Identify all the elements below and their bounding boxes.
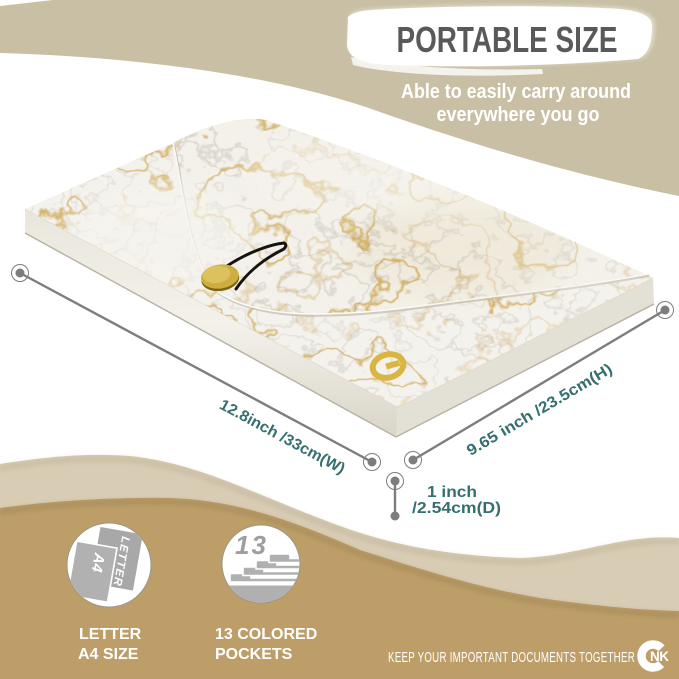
svg-text:13 COLORED: 13 COLORED	[215, 626, 317, 643]
svg-text:1 inch: 1 inch	[427, 484, 477, 501]
svg-text:NK: NK	[650, 649, 669, 664]
svg-text:PORTABLE SIZE: PORTABLE SIZE	[397, 19, 618, 60]
svg-text:A4: A4	[88, 551, 108, 574]
svg-text:Able to easily carry around: Able to easily carry around	[401, 81, 631, 103]
svg-text:/2.54cm(D): /2.54cm(D)	[412, 500, 501, 517]
svg-text:everywhere you go: everywhere you go	[437, 104, 600, 126]
svg-text:LETTER: LETTER	[79, 626, 142, 643]
svg-text:13: 13	[235, 530, 268, 560]
svg-text:KEEP YOUR IMPORTANT DOCUMENTS: KEEP YOUR IMPORTANT DOCUMENTS TOGETHER	[388, 650, 635, 666]
svg-text:POCKETS: POCKETS	[215, 646, 293, 663]
svg-text:A4 SIZE: A4 SIZE	[78, 646, 139, 663]
